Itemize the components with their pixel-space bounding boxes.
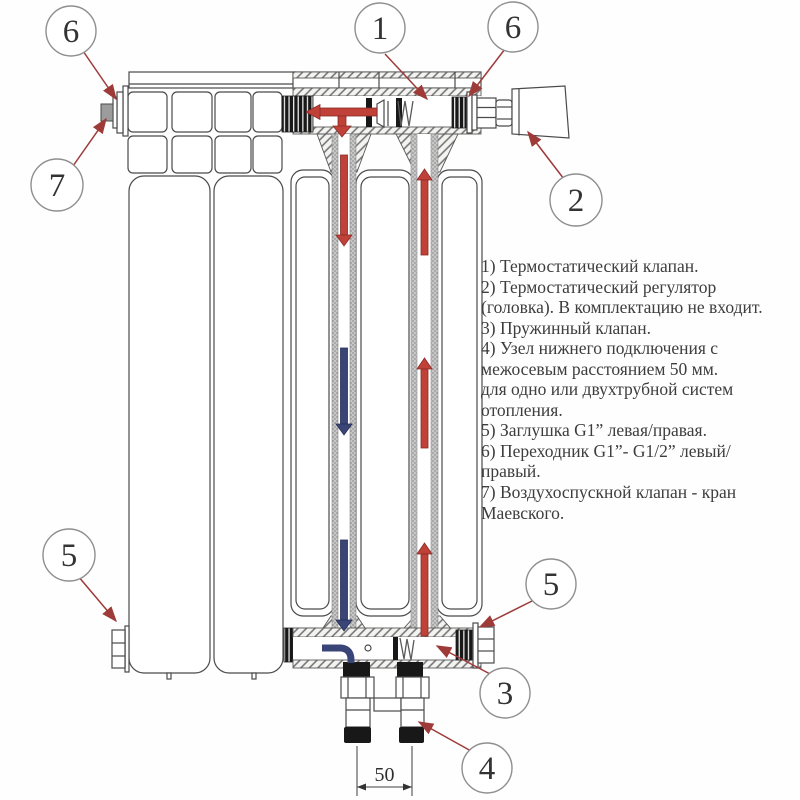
- pointer-4: [419, 722, 471, 751]
- legend-line: 1) Термостатический клапан.: [481, 256, 800, 277]
- legend: 1) Термостатический клапан. 2) Термостат…: [481, 256, 800, 523]
- pipe-cap: [399, 727, 424, 743]
- dimension-50mm: 50: [357, 746, 412, 796]
- top-collector-section: [293, 72, 496, 134]
- pointer-5-left: [78, 576, 116, 621]
- dimension-label: 50: [375, 764, 395, 786]
- top-joint-nipple: [282, 96, 313, 132]
- legend-line: 4) Узел нижнего подключения с: [481, 338, 800, 359]
- air-vent-valve: [101, 86, 128, 136]
- radiator-diagram: 50 6 7 1 6 2 5 5 3 4 1) Термостатический…: [0, 0, 800, 800]
- legend-line: 3) Пружинный клапан.: [481, 318, 800, 339]
- legend-line: 5) Заглушка G1” левая/правая.: [481, 420, 800, 441]
- legend-line: межосевым расстоянием 50 мм.: [481, 359, 800, 380]
- thermostatic-head: [496, 86, 569, 138]
- legend-line: отопления.: [481, 400, 800, 421]
- pointer-2: [528, 132, 567, 183]
- radiator-exterior-sections: [128, 72, 296, 679]
- radiator-foot: [252, 673, 256, 679]
- callout-label: 2: [568, 183, 585, 219]
- callout-label: 4: [479, 751, 496, 787]
- legend-line: 2) Термостатический регулятор: [481, 277, 800, 298]
- legend-line: 6) Переходник G1”- G1/2” левый/: [481, 441, 800, 462]
- callout-label: 3: [497, 676, 514, 712]
- callout-label: 5: [543, 567, 560, 603]
- callout-label: 1: [372, 11, 389, 47]
- legend-line: 7) Воздухоспускной клапан - кран: [481, 482, 800, 503]
- pointer-5-right: [480, 597, 540, 627]
- pointer-7: [73, 119, 106, 166]
- plug-left: [112, 626, 129, 672]
- callout-label: 6: [505, 10, 522, 46]
- pipe-cap: [344, 727, 371, 743]
- radiator-foot: [167, 673, 171, 679]
- legend-line: правый.: [481, 461, 800, 482]
- legend-line: (головка). В комплектацию не входит.: [481, 297, 800, 318]
- callout-label: 6: [63, 14, 80, 50]
- sectioned-bodies: [291, 170, 482, 616]
- bottom-connection-unit: [341, 662, 429, 743]
- legend-line: Маевского.: [481, 503, 800, 524]
- callout-label: 7: [49, 168, 66, 204]
- pointer-6-top-left: [83, 51, 116, 99]
- callout-label: 5: [61, 538, 78, 574]
- legend-line: для одно или двухтрубной систем: [481, 379, 800, 400]
